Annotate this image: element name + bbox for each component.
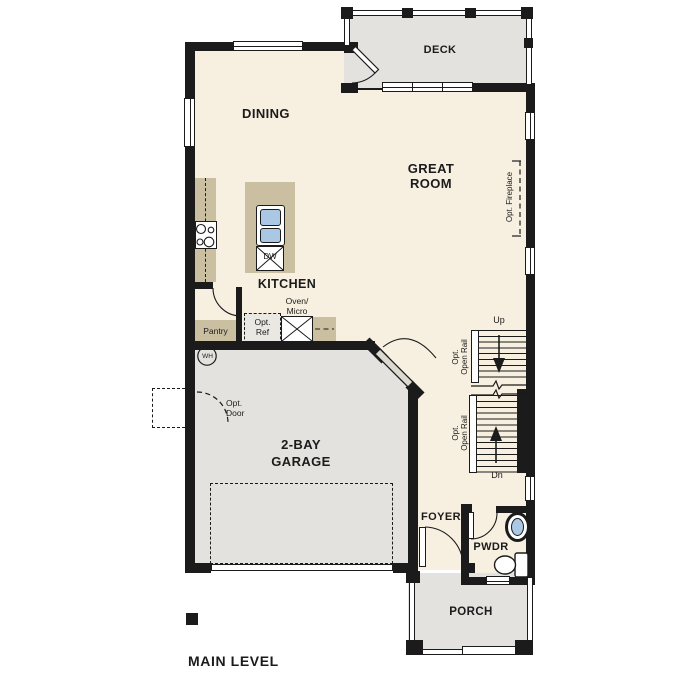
toilet-tank	[515, 553, 528, 577]
plan-symbol-overlay	[0, 0, 687, 687]
pantry-door-arc	[213, 288, 241, 316]
stairs-down-arrow-head	[490, 426, 502, 441]
water-heater-label: WH	[197, 352, 218, 362]
oven-micro-label: Oven/ Micro	[267, 296, 327, 316]
open-rail-lower-label: Opt. Open Rail	[451, 405, 469, 461]
burner-icon	[197, 225, 206, 234]
oven-micro-line1: Oven/	[267, 296, 327, 306]
pantry-label: Pantry	[195, 326, 236, 336]
burner-icon	[197, 239, 203, 245]
dining-label: DINING	[216, 106, 316, 121]
opt-ref-label: Opt. Ref	[244, 317, 281, 337]
opt-door-line1: Opt.	[226, 398, 260, 408]
burner-icon	[204, 237, 214, 247]
porch-label: PORCH	[421, 606, 521, 618]
plan-title: MAIN LEVEL	[188, 653, 328, 669]
great-room-label-line2: ROOM	[381, 176, 481, 191]
floor-plan-canvas: DINING GREAT ROOM KITCHEN DECK 2-BAY GAR…	[0, 0, 687, 687]
open-rail-upper-line2: Open Rail	[460, 329, 469, 385]
deck-label: DECK	[400, 44, 480, 56]
garage-label-line2: GARAGE	[231, 453, 371, 470]
open-rail-lower-line1: Opt.	[451, 405, 460, 461]
opt-ref-line1: Opt.	[244, 317, 281, 327]
toilet-bowl	[495, 556, 516, 574]
stairs-break-line-top	[471, 381, 528, 389]
powder-label: PWDR	[456, 541, 526, 553]
oven-micro-line2: Micro	[267, 306, 327, 316]
garage-label: 2-BAY GARAGE	[231, 436, 371, 470]
stairs-break-line-bottom	[471, 390, 528, 398]
opt-door-label: Opt. Door	[226, 398, 260, 418]
garage-label-line1: 2-BAY	[231, 436, 371, 453]
open-rail-lower-line2: Open Rail	[460, 405, 469, 461]
level-marker-square	[186, 613, 198, 625]
stairs-down-label: Dn	[482, 470, 512, 480]
foyer-label: FOYER	[406, 511, 476, 523]
deck-door-leaf	[352, 47, 379, 74]
deck-door-arc	[352, 73, 375, 83]
dishwasher-label: DW	[256, 252, 284, 262]
opt-fireplace-label: Opt. Fireplace	[505, 159, 515, 235]
great-room-label-line1: GREAT	[381, 161, 481, 176]
kitchen-label: KITCHEN	[237, 277, 337, 291]
opt-door-line2: Door	[226, 408, 260, 418]
garage-entry-door-leaf	[375, 349, 413, 387]
burner-icon	[208, 227, 214, 233]
stairs-up-label: Up	[484, 315, 514, 325]
opt-ref-line2: Ref	[244, 327, 281, 337]
open-rail-upper-line1: Opt.	[451, 329, 460, 385]
powder-sink-basin	[512, 519, 524, 536]
great-room-label: GREAT ROOM	[381, 161, 481, 191]
garage-chamfer-wall-lower	[409, 384, 421, 396]
optional-door-arc	[197, 392, 228, 423]
stairs-up-arrow-head	[493, 358, 505, 373]
garage-entry-door-arc	[383, 339, 436, 358]
open-rail-upper-label: Opt. Open Rail	[451, 329, 469, 385]
